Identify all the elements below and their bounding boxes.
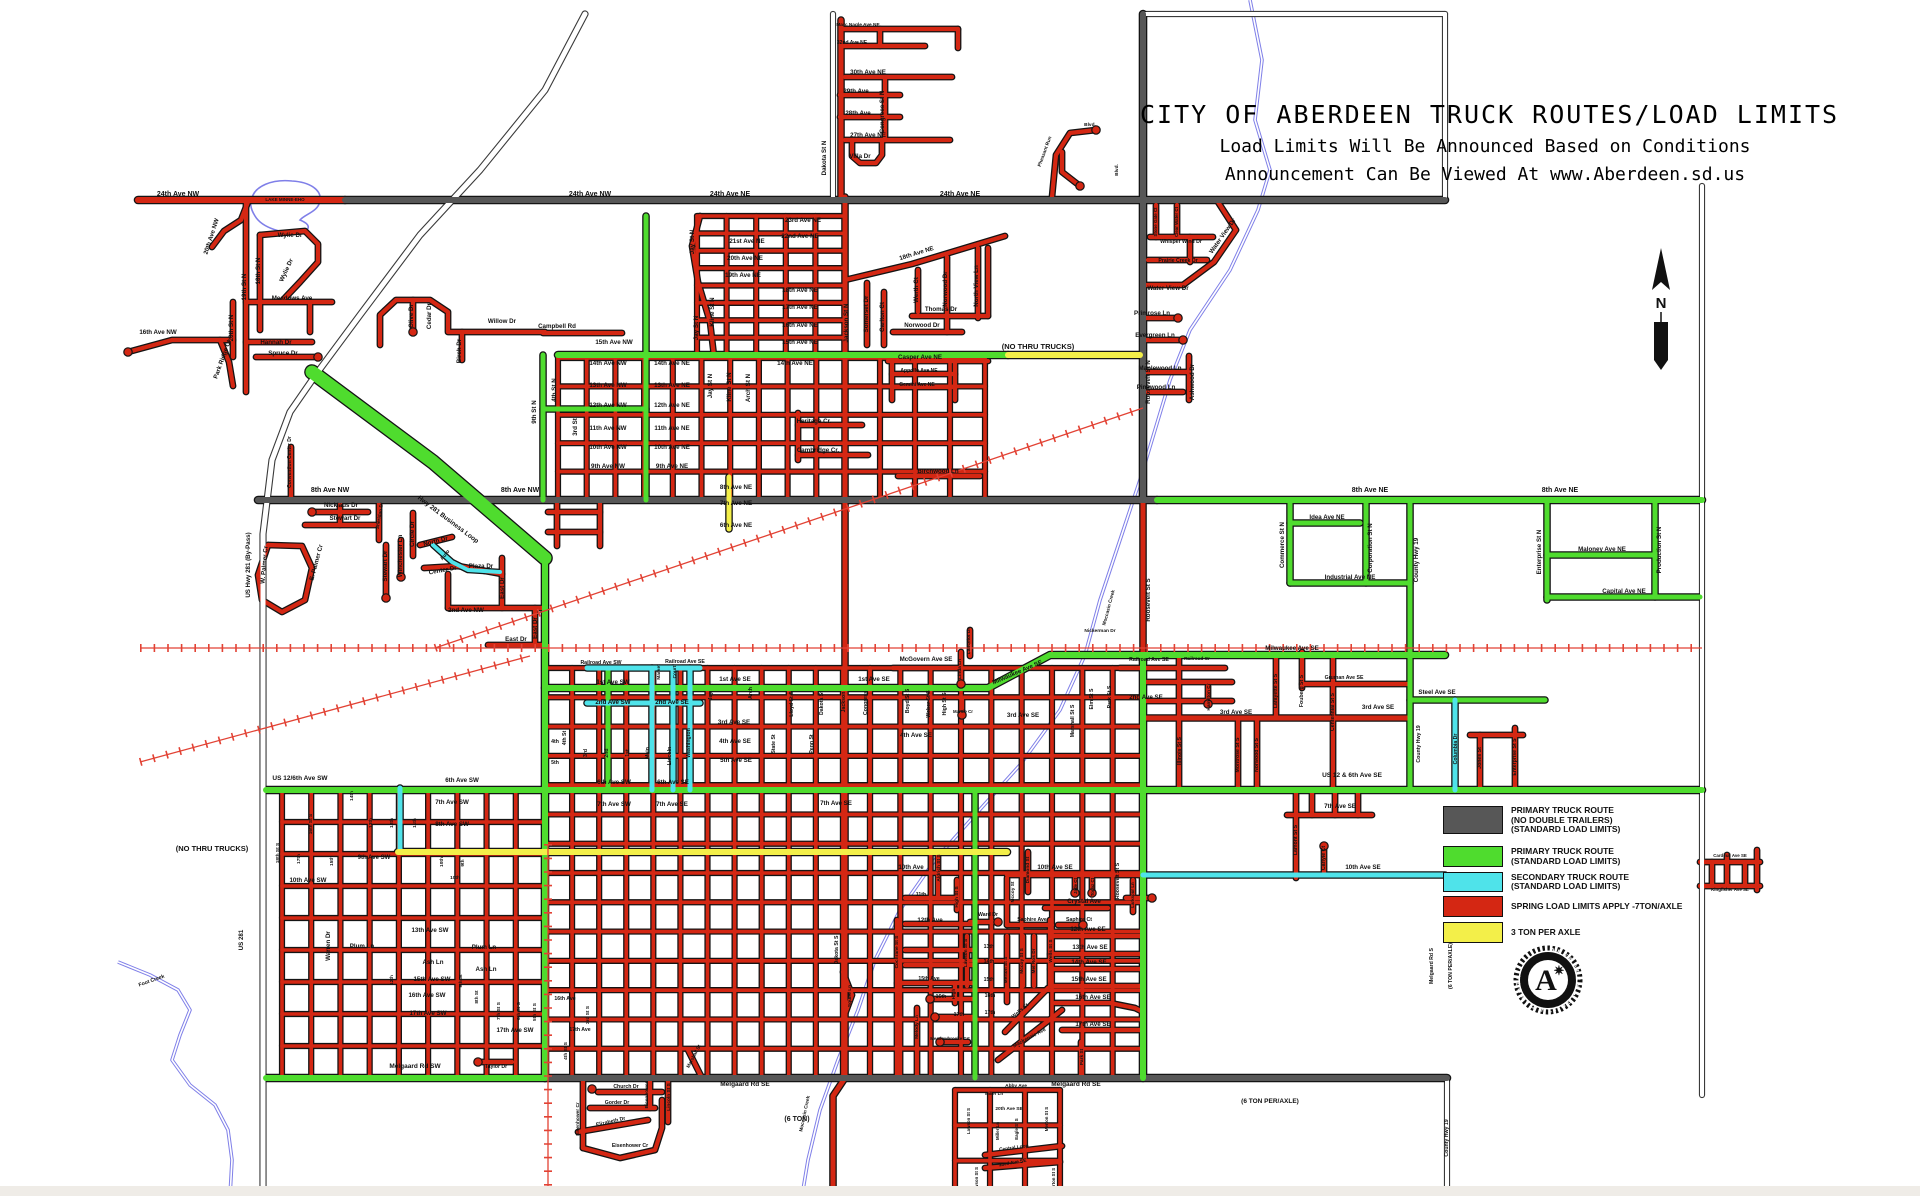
- street-label: Cardinal Ave SE: [1713, 853, 1747, 858]
- page-bottom-margin: [0, 1186, 1920, 1196]
- legend-item-2: SECONDARY TRUCK ROUTE(STANDARD LOAD LIMI…: [1443, 872, 1629, 892]
- street-label: Stone Gate Ct: [1153, 207, 1158, 237]
- map-title: CITY OF ABERDEEN TRUCK ROUTES/LOAD LIMIT…: [1140, 100, 1830, 129]
- street-label: 18th St S: [275, 842, 281, 863]
- legend-label: PRIMARY TRUCK ROUTE(NO DOUBLE TRAILERS)(…: [1511, 806, 1620, 835]
- street-label: Market: [656, 664, 662, 680]
- street-label: County Hwy 19: [1413, 537, 1420, 582]
- street-label: Kline St N: [726, 372, 733, 402]
- street-label: 21st Ave NE: [729, 238, 764, 245]
- map-subtitle-2: Announcement Can Be Viewed At www.Aberde…: [1140, 164, 1830, 185]
- street-label: 2nd Ave NW: [448, 607, 484, 614]
- north-arrow-icon: N: [1644, 246, 1678, 378]
- street-label: 8th Ave NE: [1352, 487, 1389, 494]
- legend-label: SPRING LOAD LIMITS APPLY -7TON/AXLE: [1511, 902, 1682, 912]
- street-label: 20th Ave SE: [995, 1106, 1023, 1112]
- street-label: LAKE MINNE-EHO: [265, 197, 305, 202]
- cul-de-sac-dot: [308, 508, 316, 516]
- street-label: State St: [771, 734, 777, 754]
- creek: [118, 962, 232, 1196]
- street-label: Dakota St S: [834, 935, 840, 964]
- street-label: Eagle St S: [1014, 1118, 1019, 1140]
- street-label: 1st: [625, 749, 631, 757]
- street-label: Marc Nagle Ave NE: [836, 22, 880, 28]
- street-label: (6 TON PER/AXLE): [1448, 943, 1454, 989]
- street-label: Melgaard Rd SE: [720, 1081, 770, 1088]
- street-label: Gemini Ave NE: [899, 382, 935, 388]
- street-label: Church Dr: [613, 1084, 638, 1090]
- street-label: 14th Ave NE: [654, 360, 690, 367]
- street-label: Ash Ln: [423, 959, 444, 966]
- street-label: Topaz Ct: [1090, 877, 1095, 896]
- street-label: Jay St N: [707, 373, 714, 398]
- street-label: County Hwy 19: [1444, 1119, 1450, 1156]
- street-label: Melgaard Rd SW: [389, 1063, 441, 1070]
- street-label: Pinewood Ln: [1137, 384, 1176, 391]
- street-label: Jones St: [1477, 747, 1483, 769]
- street-label: 10th Ave SE: [1037, 864, 1072, 871]
- street-label: Plum Ln: [350, 943, 375, 950]
- street-label: 3rd St S: [585, 1005, 591, 1024]
- street-label: Cedar Dr: [426, 302, 433, 329]
- street-label: 18th St N: [255, 257, 262, 284]
- street-label: 24th Ave NE: [940, 191, 981, 198]
- street-label: Lamont St S: [1293, 824, 1299, 855]
- street-label: 15th Ave SE: [1071, 976, 1106, 983]
- street-label: 4th: [551, 739, 559, 745]
- street-label: 10th: [450, 875, 460, 881]
- street-label: 13th: [368, 818, 374, 828]
- street-label: US Hwy 281 (By-Pass): [245, 532, 252, 597]
- street-label: 1st Ave SE: [719, 676, 751, 683]
- street-label: Carlton Ct: [879, 302, 886, 332]
- street-label: 28th Ave: [845, 110, 871, 117]
- street-label: Mccoy St S: [1019, 947, 1025, 973]
- street-label: Roosevelt St S: [1145, 578, 1152, 621]
- street-label: 14th: [349, 791, 355, 801]
- legend-swatch: [1443, 806, 1503, 834]
- street-label: US 12 & 6th Ave SE: [1322, 772, 1383, 779]
- street-label: Dakota St N: [821, 140, 828, 175]
- street-label: 15th Ave: [918, 976, 939, 982]
- cul-de-sac-dot: [931, 1013, 939, 1021]
- street-label: 12th Ave: [917, 917, 943, 924]
- street-label: Eisenhower Cr: [612, 1143, 648, 1149]
- street-label: Pheasant Run: [1037, 136, 1054, 168]
- street-label: Railroad Ave SE: [665, 659, 705, 665]
- street-label: 22nd Ave NE: [781, 233, 818, 240]
- street-label: 10th Ave: [898, 864, 924, 871]
- street-label: High: [951, 989, 957, 1000]
- street-label: Casper Ave NE: [898, 354, 942, 361]
- street-label: 2nd Ave SE: [1129, 694, 1163, 701]
- street-label: High St S: [942, 692, 948, 716]
- street-label: Wells St S: [1048, 939, 1054, 963]
- street-label: Commerce St N: [1279, 521, 1286, 568]
- street-label: Railroad Ave SE: [1129, 657, 1169, 663]
- street-label: Diamond St: [1025, 856, 1031, 883]
- street-label: Kingfisher Ave SE: [1711, 887, 1749, 892]
- street-label: Gruman Ave SE: [1325, 675, 1364, 681]
- cul-de-sac-dot: [1174, 314, 1182, 322]
- street-label: Melgaard Rd S: [1429, 947, 1435, 984]
- street-label: Campbell Rd: [538, 323, 576, 330]
- street-label: 16th Ave SW: [408, 992, 445, 999]
- street-label: Birchwood Ln: [917, 468, 958, 475]
- street-label: Taylor Dr: [485, 1064, 507, 1070]
- street-label: Carlyle Ct: [1321, 846, 1327, 870]
- street-label: Industrial Ave NE: [1325, 574, 1376, 581]
- logo-star: ✷: [1554, 963, 1565, 978]
- street-label: Saphire Ave: [1017, 917, 1047, 923]
- street-label: 17th: [296, 854, 302, 864]
- street-label: 16th Ave: [554, 996, 575, 1002]
- street-label: Norwood St S: [1254, 737, 1260, 772]
- street-label: 14th: [984, 959, 995, 965]
- street-label: 17th Ave SW: [496, 1027, 533, 1034]
- street-label: Plum Ln: [472, 944, 497, 951]
- street-label: Roosevelt St S: [1115, 862, 1121, 899]
- street-label: Moccasin Creek: [1101, 589, 1116, 626]
- street-label: 14th Ave NE: [777, 360, 813, 367]
- street-label: Melgaard Rd SE: [1051, 1081, 1101, 1088]
- street-label: 14th Ave NW: [589, 360, 627, 367]
- street-label: Cambridge Cr.: [797, 447, 840, 454]
- street-label: Idea Ave NE: [1309, 514, 1344, 521]
- street-label: Convention Center Dr: [287, 436, 293, 488]
- street-label: Marshall St S: [1070, 704, 1076, 737]
- street-label: Railroad Ave SW: [580, 660, 621, 666]
- street-label: Gorder Dr: [605, 1100, 630, 1106]
- street-label: 8th Ave NE: [720, 484, 752, 491]
- legend-label: PRIMARY TRUCK ROUTE(STANDARD LOAD LIMITS…: [1511, 847, 1620, 866]
- street-label: Meadows Ave: [272, 295, 313, 302]
- street-label: Production St N: [1656, 526, 1663, 573]
- street-label: 12th Ave NE: [654, 402, 690, 409]
- street-label: Wylie Dr: [278, 232, 303, 239]
- street-label: 19th St N: [241, 273, 248, 300]
- legend-item-3: SPRING LOAD LIMITS APPLY -7TON/AXLE: [1443, 896, 1682, 917]
- street-label: 12th: [389, 818, 395, 828]
- street-label: (NO THRU TRUCKS): [1002, 342, 1075, 351]
- street-label: Ashwood Dr: [1189, 363, 1196, 400]
- street-label: Spruce Dr: [268, 350, 298, 357]
- street-label: Weber St S: [926, 690, 932, 718]
- street-label: 6th Ave SW: [597, 779, 631, 786]
- street-label: 17th Ave: [569, 1027, 590, 1033]
- street-label: Primrose Ln: [1134, 310, 1170, 317]
- street-label: Railroad Cr: [1184, 656, 1210, 662]
- legend-swatch: [1443, 846, 1503, 867]
- cul-de-sac-dot: [994, 918, 1002, 926]
- street-label: 15th: [984, 977, 995, 983]
- street-label: Norwood Dr: [904, 322, 940, 329]
- map-subtitle-1: Load Limits Will Be Announced Based on C…: [1140, 136, 1830, 157]
- street-label: 16th: [985, 993, 996, 999]
- street-label: Nicklaus Dr: [324, 502, 359, 509]
- street-label: Elm St S: [1089, 688, 1095, 710]
- city-logo: ABERDEEN • SOUTH DAKOTA • A ✷: [1510, 942, 1586, 1018]
- street-label: 2nd Ave SE: [655, 699, 689, 706]
- street-label: 9th Ave SW: [358, 855, 391, 861]
- street-label: 10th Ave SW: [289, 877, 326, 884]
- street-label: 11th: [916, 892, 926, 898]
- street-label: Werth Ct: [913, 277, 920, 303]
- street-label: (6 TON PER/AXLE): [1241, 1098, 1299, 1105]
- street-label: Wylie Dr: [278, 257, 295, 283]
- street-label: Hamilton Cr: [1206, 683, 1212, 710]
- street-label: Abby Ave: [1005, 1083, 1027, 1089]
- street-label: Capital Ave NE: [1602, 588, 1646, 595]
- street-label: 7th Ave NE: [720, 500, 752, 507]
- street-label: 8th Ave SW: [435, 821, 469, 828]
- street-label: Jackson St N: [843, 303, 850, 342]
- street-label: 9th St N: [531, 400, 538, 424]
- street-label: Jackson: [841, 692, 847, 713]
- street-label: 17th Ave SE: [1075, 1021, 1110, 1028]
- street-label: Jay: [708, 692, 714, 701]
- street-label: Hannah Dr: [260, 339, 292, 346]
- street-label: 15th Ave NE: [782, 339, 818, 346]
- street-label: Lincoln: [667, 747, 673, 765]
- cul-de-sac-dot: [409, 328, 417, 336]
- street-label: Mccoy St: [1010, 881, 1016, 902]
- street-label: Enterprise St N: [1536, 529, 1543, 574]
- title-block: CITY OF ABERDEEN TRUCK ROUTES/LOAD LIMIT…: [1140, 100, 1830, 185]
- street-label: Lincoln St S: [666, 1082, 672, 1111]
- street-label: 9th Ave NE: [656, 463, 688, 470]
- street-label: Lawson St S: [966, 1108, 971, 1134]
- street-label: 8th Ave NW: [311, 487, 350, 494]
- street-label: 5th: [551, 760, 559, 766]
- street-label: 7th Ave SW: [597, 801, 631, 808]
- street-label: 10th: [439, 857, 445, 867]
- street-label: Dakota St: [819, 691, 825, 715]
- street-label: 16th Ave NW: [139, 329, 177, 336]
- street-label: US 281: [238, 929, 245, 950]
- street-label: 15th Ave NW: [595, 339, 633, 346]
- street-label: 7th Ave SE: [656, 801, 688, 808]
- street-label: 13th Ave SE: [1072, 944, 1107, 951]
- street-label: 13th Ave NW: [589, 382, 627, 389]
- street-label: 6th Ave SE: [657, 779, 689, 786]
- street-label: Clear Water Ct: [1174, 206, 1179, 237]
- street-label: Congress: [863, 691, 869, 715]
- legend-swatch: [1443, 872, 1503, 892]
- street-label: 20th Ave NE: [727, 255, 763, 262]
- street-label: Miller Ln: [995, 1122, 1000, 1140]
- street-label: Fouberg St S: [1299, 674, 1305, 707]
- street-label: Lloyd St S: [789, 691, 795, 717]
- cul-de-sac-dot: [474, 1058, 482, 1066]
- street-label: 5th Ave SE: [720, 757, 752, 764]
- street-label: Heritage Cr.: [797, 418, 832, 425]
- street-label: 6th Ave NE: [720, 522, 752, 529]
- street-label: Cochrane St S: [894, 935, 900, 969]
- cul-de-sac-dot: [124, 348, 132, 356]
- street-label: Arch St N: [745, 373, 752, 402]
- street-label: Washington: [686, 728, 692, 758]
- street-label: 1st Ave SE: [858, 676, 890, 683]
- street-label: Water View Dr: [1147, 285, 1189, 292]
- street-label: Lafayette St S: [1273, 673, 1279, 708]
- street-label: Congress St N: [879, 90, 886, 133]
- street-label: 7th Ave SE: [1324, 803, 1356, 810]
- lake-minne-eho: [251, 181, 320, 233]
- street-label: Court: [672, 665, 678, 678]
- map-page: { "title": { "line1": "CITY OF ABERDEEN …: [0, 0, 1920, 1196]
- street-label: 3rd: [583, 749, 589, 757]
- street-label: Miller Ln: [985, 1091, 1003, 1096]
- street-label: Melody Ln: [914, 1015, 920, 1039]
- street-label: County Hwy 19: [1416, 725, 1422, 762]
- compass-label: N: [1656, 295, 1667, 312]
- street-label: US 12/6th Ave SW: [272, 775, 328, 782]
- street-label: 1st Ave SW: [596, 679, 629, 686]
- street-label: Arch: [748, 687, 754, 699]
- legend-item-4: 3 TON PER AXLE: [1443, 922, 1580, 943]
- street-label: 20th St N: [228, 314, 235, 341]
- cul-de-sac-dot: [926, 995, 934, 1003]
- street-label: Blvd.: [1084, 122, 1096, 128]
- road-red: [833, 1078, 845, 1196]
- street-label: High St S: [954, 886, 960, 908]
- street-label: 23rd Ave NE: [785, 217, 821, 224]
- street-label: Jade Ct: [1073, 878, 1078, 894]
- street-label: Maplewood Ln: [1139, 365, 1182, 372]
- street-label: Somerset Dr: [863, 295, 870, 332]
- street-label: 4th St: [562, 731, 568, 746]
- street-label: Milwaukee Ave SE: [991, 659, 1043, 686]
- street-label: Corporation St N: [1367, 523, 1374, 573]
- street-label: 30th Ave NE: [850, 69, 886, 76]
- street-label: Park St S: [1107, 685, 1113, 708]
- street-label: 17th Ave NE: [782, 304, 818, 311]
- street-label: Kline St N: [709, 297, 716, 327]
- road-green: [312, 372, 545, 558]
- street-label: 2nd: [604, 748, 610, 757]
- street-label: 24th Ave NW: [569, 191, 612, 198]
- legend-swatch: [1443, 922, 1503, 943]
- street-label: Milwaukee Ave SE: [1265, 645, 1319, 652]
- street-label: 4th St N: [551, 378, 558, 402]
- street-label: Prairie Creek Dr: [1158, 258, 1197, 264]
- street-label: 4th Ave SE: [900, 732, 932, 739]
- street-label: Park St: [1079, 1048, 1085, 1065]
- street-label: Whisper Wind Dr: [1160, 239, 1202, 245]
- street-label: Montrose St S: [1235, 737, 1241, 772]
- street-label: 15th Ave SW: [413, 976, 450, 983]
- street-label: McGovern Ave SE: [900, 656, 953, 663]
- creek-inner: [118, 962, 232, 1196]
- street-label: 18th Ave NE: [782, 287, 818, 294]
- cul-de-sac-dot: [1179, 336, 1187, 344]
- street-label: 10th Ave NE: [654, 444, 690, 451]
- cul-de-sac-dot: [957, 680, 965, 688]
- railroad: [140, 656, 530, 762]
- legend-item-0: PRIMARY TRUCK ROUTE(NO DOUBLE TRAILERS)(…: [1443, 806, 1620, 835]
- street-label: 16th: [936, 994, 947, 1000]
- street-label: Eisenhower Cr: [575, 1102, 581, 1136]
- street-label: Eisenhower: [644, 1081, 650, 1108]
- street-label: Circle Dr: [409, 521, 416, 547]
- street-label: Merton St S: [1003, 956, 1009, 983]
- street-label: 11th Ave NW: [589, 425, 626, 432]
- street-label: 16th Ave SE: [1075, 994, 1110, 1001]
- cul-de-sac-dot: [314, 353, 322, 361]
- street-label: 15th: [329, 856, 335, 866]
- street-label: Centennial St S: [1330, 692, 1336, 731]
- street-label: Olive Dr: [408, 304, 415, 328]
- street-label: 6th St S: [516, 1001, 522, 1020]
- street-label: 17th: [985, 1010, 996, 1016]
- street-label: Norwood Dr: [942, 271, 949, 307]
- street-label: Lawson St S: [963, 938, 969, 967]
- street-label: Jay St N: [693, 315, 700, 340]
- street-label: Winchester Ln: [397, 534, 404, 577]
- legend-label: 3 TON PER AXLE: [1511, 928, 1580, 938]
- street-label: Marsie Cr: [953, 709, 973, 714]
- street-label: Evergreen Ln: [1135, 332, 1175, 339]
- street-label: Blvd.: [1114, 164, 1120, 176]
- street-label: Warren Dr: [325, 931, 332, 961]
- street-label: 5th St S: [532, 1002, 538, 1021]
- street-label: Penn St: [809, 734, 815, 754]
- street-label: Linda Ln: [957, 659, 963, 679]
- street-label: 3rd Ave SE: [718, 719, 750, 726]
- street-label: Stewart Dr: [330, 515, 362, 522]
- street-label: Merton St S: [1044, 1107, 1049, 1131]
- street-label: Aldrich St S: [936, 854, 942, 882]
- street-label: Ash Ln: [476, 966, 497, 973]
- street-label: Crystal Ave: [1067, 898, 1101, 905]
- street-label: 32nd Ave NE: [837, 40, 868, 46]
- street-label: 19th Ave NE: [725, 272, 761, 279]
- street-label: Meadowbrooke Crt: [930, 1036, 970, 1041]
- street-label: 12th Ave NW: [589, 402, 627, 409]
- street-label: 3rd Ave SE: [1007, 712, 1039, 719]
- street-label: 9th: [460, 859, 466, 866]
- street-label: 10th Ave SE: [1345, 864, 1380, 871]
- street-label: Enterprise St S: [1512, 738, 1518, 776]
- street-label: Squire Ln: [847, 985, 853, 1007]
- street-label: Ward Dr: [978, 912, 998, 918]
- street-label: Steel Ave SE: [1418, 689, 1455, 696]
- street-label: 12th: [389, 975, 395, 985]
- street-label: 13th: [984, 944, 995, 950]
- street-label: 11th: [412, 818, 418, 828]
- street-label: 3rd Ave SE: [1220, 709, 1252, 716]
- legend-item-1: PRIMARY TRUCK ROUTE(STANDARD LOAD LIMITS…: [1443, 846, 1620, 867]
- street-label: Columbia Dr: [1453, 734, 1459, 765]
- street-label: Villa Dr: [849, 153, 871, 160]
- street-label: Birch Dr: [456, 338, 463, 363]
- street-label: North View Ln: [973, 265, 980, 307]
- street-label: 13th Ave SW: [411, 927, 448, 934]
- street-label: Plaza Dr: [469, 563, 494, 570]
- street-label: Main: [645, 747, 651, 759]
- street-label: (NO THRU TRUCKS): [176, 844, 249, 853]
- street-label: Willow Dr: [488, 318, 517, 325]
- street-label: 2nd Ave SW: [595, 699, 630, 706]
- street-label: Lancelot Dr: [966, 628, 972, 655]
- street-label: 7th Ave SW: [435, 799, 469, 806]
- cul-de-sac-dot: [382, 594, 390, 602]
- street-label: Nickerman Dr: [1084, 628, 1115, 634]
- street-label: 9th Ave NW: [591, 463, 625, 470]
- street-label: Jay St N: [689, 229, 696, 254]
- street-label: Appollo Ave NE: [900, 368, 938, 374]
